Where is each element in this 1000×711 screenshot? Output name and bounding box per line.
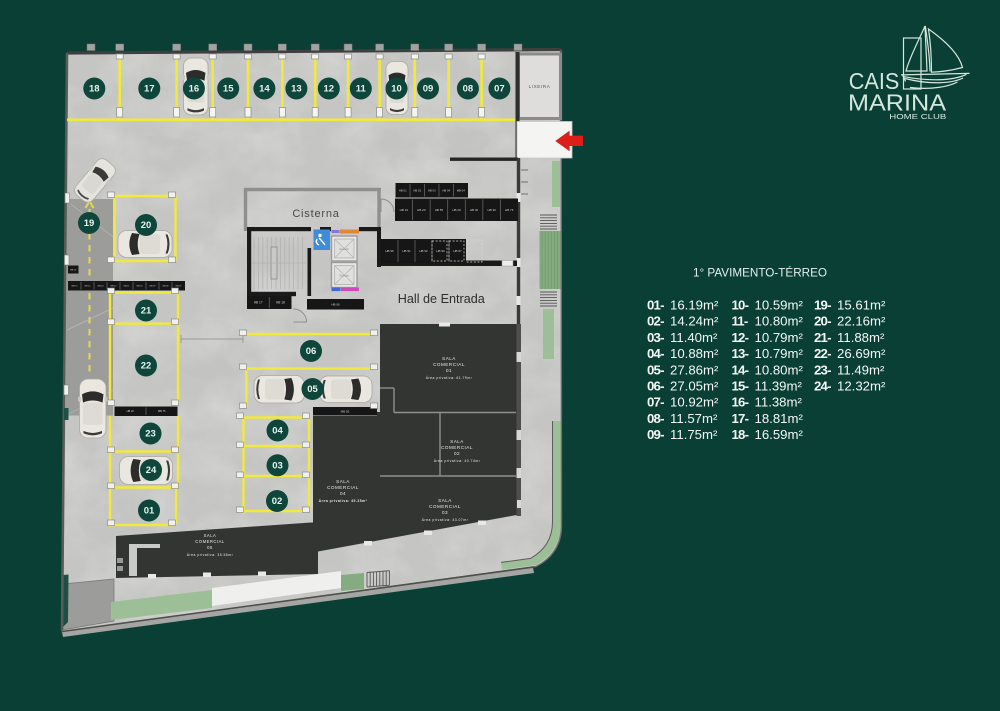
svg-text:02: 02: [272, 496, 283, 507]
svg-text:08: 08: [463, 84, 474, 95]
svg-text:HB 03: HB 03: [428, 188, 436, 192]
svg-text:1° PAVIMENTO-TÉRREO: 1° PAVIMENTO-TÉRREO: [693, 265, 827, 280]
svg-text:23-: 23-: [814, 362, 831, 377]
svg-text:HB 04: HB 04: [442, 188, 450, 192]
svg-text:21: 21: [141, 306, 152, 317]
svg-text:24: 24: [146, 465, 157, 476]
svg-text:Elevador: Elevador: [339, 248, 349, 251]
svg-text:01: 01: [144, 506, 155, 517]
svg-text:COMERCIAL: COMERCIAL: [195, 539, 225, 544]
svg-text:12-: 12-: [732, 330, 749, 345]
svg-text:11.49m²: 11.49m²: [837, 362, 885, 377]
svg-text:18: 18: [89, 84, 100, 95]
svg-text:03: 03: [272, 461, 283, 472]
svg-text:14: 14: [259, 84, 270, 95]
svg-text:10.79m²: 10.79m²: [755, 330, 804, 345]
svg-text:HB 06: HB 06: [331, 302, 340, 306]
svg-text:MB 07: MB 07: [176, 286, 183, 288]
svg-text:05: 05: [207, 545, 213, 550]
svg-text:COMERCIAL: COMERCIAL: [429, 504, 461, 509]
svg-text:04-: 04-: [647, 346, 664, 361]
svg-text:07-: 07-: [647, 395, 664, 410]
svg-text:Área privativa: 61.79m²: Área privativa: 61.79m²: [426, 376, 473, 380]
svg-text:Área privativa: 45.35m²: Área privativa: 45.35m²: [319, 498, 368, 503]
svg-text:MB 08: MB 08: [163, 286, 170, 288]
svg-text:MB 55: MB 55: [341, 409, 350, 413]
svg-text:HB 40: HB 40: [470, 208, 479, 212]
svg-text:HB 55: HB 55: [435, 208, 444, 212]
svg-text:COMERCIAL: COMERCIAL: [441, 445, 473, 450]
svg-text:23: 23: [145, 429, 156, 440]
svg-text:10.80m²: 10.80m²: [755, 314, 804, 329]
svg-text:11: 11: [356, 84, 367, 95]
svg-text:16.19m²: 16.19m²: [670, 298, 719, 313]
svg-text:MB 10: MB 10: [137, 286, 144, 288]
svg-text:19: 19: [84, 218, 95, 229]
svg-text:24-: 24-: [814, 379, 831, 394]
svg-text:17: 17: [144, 84, 155, 95]
svg-text:COMERCIAL: COMERCIAL: [327, 485, 359, 490]
svg-text:06-: 06-: [647, 379, 664, 394]
svg-text:10-: 10-: [732, 298, 749, 313]
svg-text:SALA: SALA: [336, 479, 350, 484]
svg-text:11.40m²: 11.40m²: [670, 330, 718, 345]
svg-text:10.88m²: 10.88m²: [670, 346, 719, 361]
svg-text:01: 01: [446, 368, 452, 373]
svg-text:SALA: SALA: [442, 356, 456, 361]
svg-text:09: 09: [423, 84, 434, 95]
svg-text:14.24m²: 14.24m²: [670, 314, 719, 329]
svg-text:04: 04: [340, 491, 346, 496]
svg-text:11.38m²: 11.38m²: [755, 395, 803, 410]
svg-text:MB 13: MB 13: [98, 286, 105, 288]
svg-text:MB 04: MB 04: [457, 188, 466, 192]
svg-text:14-: 14-: [732, 362, 749, 377]
svg-text:03-: 03-: [647, 330, 664, 345]
svg-text:MB 12: MB 12: [111, 286, 118, 288]
svg-text:HB 76: HB 76: [505, 208, 514, 212]
svg-text:11.75m²: 11.75m²: [670, 427, 718, 442]
svg-text:11.88m²: 11.88m²: [837, 330, 885, 345]
svg-text:11.57m²: 11.57m²: [670, 411, 718, 426]
svg-text:22.16m²: 22.16m²: [837, 314, 886, 329]
svg-text:27.05m²: 27.05m²: [670, 379, 719, 394]
svg-text:10: 10: [391, 84, 402, 95]
svg-text:12.32m²: 12.32m²: [837, 379, 886, 394]
svg-text:MB 75: MB 75: [158, 409, 166, 413]
svg-text:13-: 13-: [732, 346, 749, 361]
svg-text:02: 02: [454, 451, 460, 456]
svg-text:26.69m²: 26.69m²: [837, 346, 886, 361]
svg-text:08-: 08-: [647, 411, 664, 426]
svg-text:HB 91: HB 91: [402, 249, 411, 253]
svg-text:HB 93: HB 93: [436, 249, 445, 253]
svg-text:HB 18: HB 18: [276, 301, 285, 305]
svg-text:HB 96: HB 96: [385, 249, 394, 253]
svg-text:HB 22: HB 22: [127, 409, 135, 413]
svg-text:MB 11: MB 11: [124, 286, 131, 288]
svg-text:19-: 19-: [814, 298, 831, 313]
svg-text:COMERCIAL: COMERCIAL: [433, 362, 465, 367]
svg-text:MB 15: MB 15: [72, 286, 79, 288]
svg-text:Área privativa: 35.56m²: Área privativa: 35.56m²: [187, 553, 234, 557]
svg-text:05-: 05-: [647, 362, 664, 377]
svg-text:HB 20: HB 20: [417, 208, 426, 212]
svg-text:HB 01: HB 01: [399, 188, 407, 192]
svg-text:10.92m²: 10.92m²: [670, 395, 719, 410]
svg-text:20-: 20-: [814, 314, 831, 329]
svg-text:16-: 16-: [732, 395, 749, 410]
svg-text:HB 29: HB 29: [452, 208, 461, 212]
svg-text:11.39m²: 11.39m²: [755, 379, 803, 394]
svg-text:09-: 09-: [647, 427, 664, 442]
svg-text:10.59m²: 10.59m²: [755, 298, 804, 313]
svg-text:22: 22: [141, 361, 152, 372]
svg-text:HB 97: HB 97: [453, 249, 462, 253]
svg-text:15: 15: [223, 84, 234, 95]
svg-text:Cisterna: Cisterna: [292, 208, 339, 220]
svg-text:HB 17: HB 17: [254, 301, 263, 305]
svg-text:18-: 18-: [732, 427, 749, 442]
svg-text:HOME CLUB: HOME CLUB: [889, 112, 946, 121]
svg-text:18.81m²: 18.81m²: [755, 411, 804, 426]
svg-text:05: 05: [307, 384, 318, 395]
svg-text:SALA: SALA: [438, 498, 452, 503]
svg-text:12: 12: [324, 84, 335, 95]
svg-text:11-: 11-: [732, 314, 748, 329]
svg-text:HB 19: HB 19: [400, 208, 409, 212]
svg-text:06: 06: [306, 346, 317, 357]
svg-text:17-: 17-: [732, 411, 749, 426]
svg-text:SALA: SALA: [204, 533, 217, 538]
svg-text:SALA: SALA: [450, 439, 464, 444]
svg-text:HB 92: HB 92: [419, 249, 428, 253]
svg-text:Área privativa: 43.07m²: Área privativa: 43.07m²: [422, 518, 469, 522]
svg-text:16: 16: [189, 84, 200, 95]
svg-text:15.61m²: 15.61m²: [837, 298, 886, 313]
svg-text:03: 03: [442, 510, 448, 515]
svg-text:Elevador: Elevador: [339, 274, 349, 277]
svg-text:10.80m²: 10.80m²: [755, 362, 804, 377]
svg-text:04: 04: [272, 426, 283, 437]
svg-text:MB 09: MB 09: [150, 286, 157, 288]
svg-text:MB 14: MB 14: [85, 286, 92, 288]
svg-text:LIXEIRA: LIXEIRA: [529, 84, 551, 89]
svg-text:22-: 22-: [814, 346, 831, 361]
svg-text:HB 36: HB 36: [487, 208, 496, 212]
svg-text:20: 20: [141, 220, 152, 231]
svg-text:10.79m²: 10.79m²: [755, 346, 804, 361]
svg-text:Área privativa: 40.74m²: Área privativa: 40.74m²: [434, 459, 481, 463]
svg-text:16.59m²: 16.59m²: [755, 427, 804, 442]
svg-text:MB 16: MB 16: [70, 269, 77, 271]
svg-text:21-: 21-: [814, 330, 831, 345]
svg-text:Hall de Entrada: Hall de Entrada: [398, 291, 486, 306]
svg-text:07: 07: [494, 84, 505, 95]
svg-text:HB 02: HB 02: [413, 188, 421, 192]
svg-text:02-: 02-: [647, 314, 664, 329]
svg-text:01-: 01-: [647, 298, 664, 313]
svg-text:15-: 15-: [732, 379, 749, 394]
svg-text:13: 13: [291, 84, 302, 95]
svg-text:27.86m²: 27.86m²: [670, 362, 719, 377]
